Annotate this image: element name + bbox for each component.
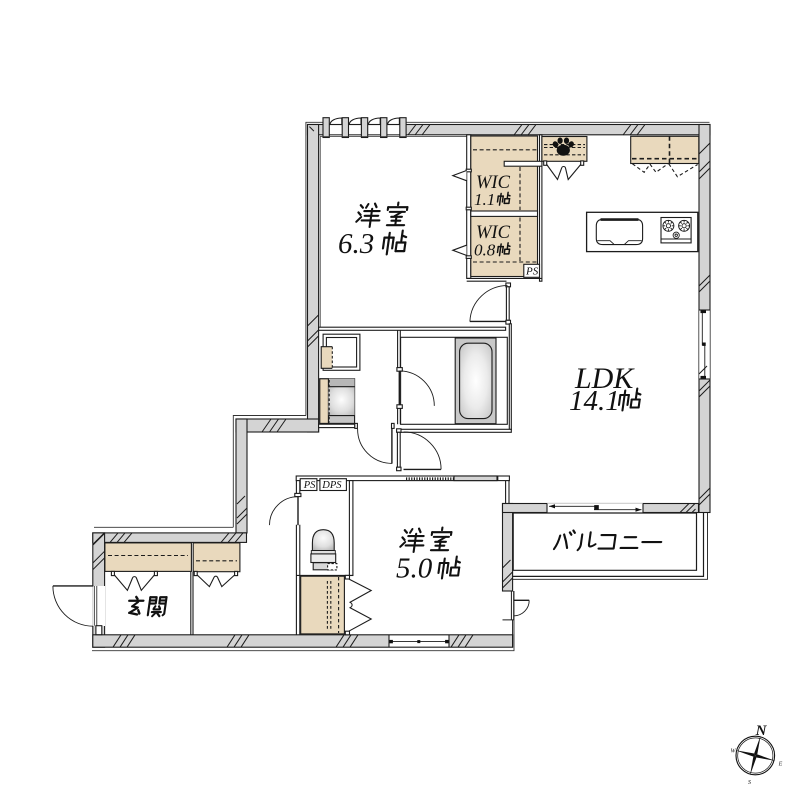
svg-text:PS: PS	[303, 480, 316, 491]
svg-text:N: N	[755, 723, 768, 739]
svg-text:14.1: 14.1	[569, 385, 620, 417]
svg-text:0.8: 0.8	[474, 241, 496, 260]
svg-text:1.1: 1.1	[474, 190, 495, 209]
svg-text:E: E	[778, 762, 783, 768]
svg-text:DPS: DPS	[321, 480, 342, 491]
svg-text:PS: PS	[525, 266, 539, 278]
svg-text:5.0: 5.0	[396, 553, 433, 585]
svg-text:S: S	[748, 780, 751, 786]
svg-text:6.3: 6.3	[338, 228, 374, 260]
